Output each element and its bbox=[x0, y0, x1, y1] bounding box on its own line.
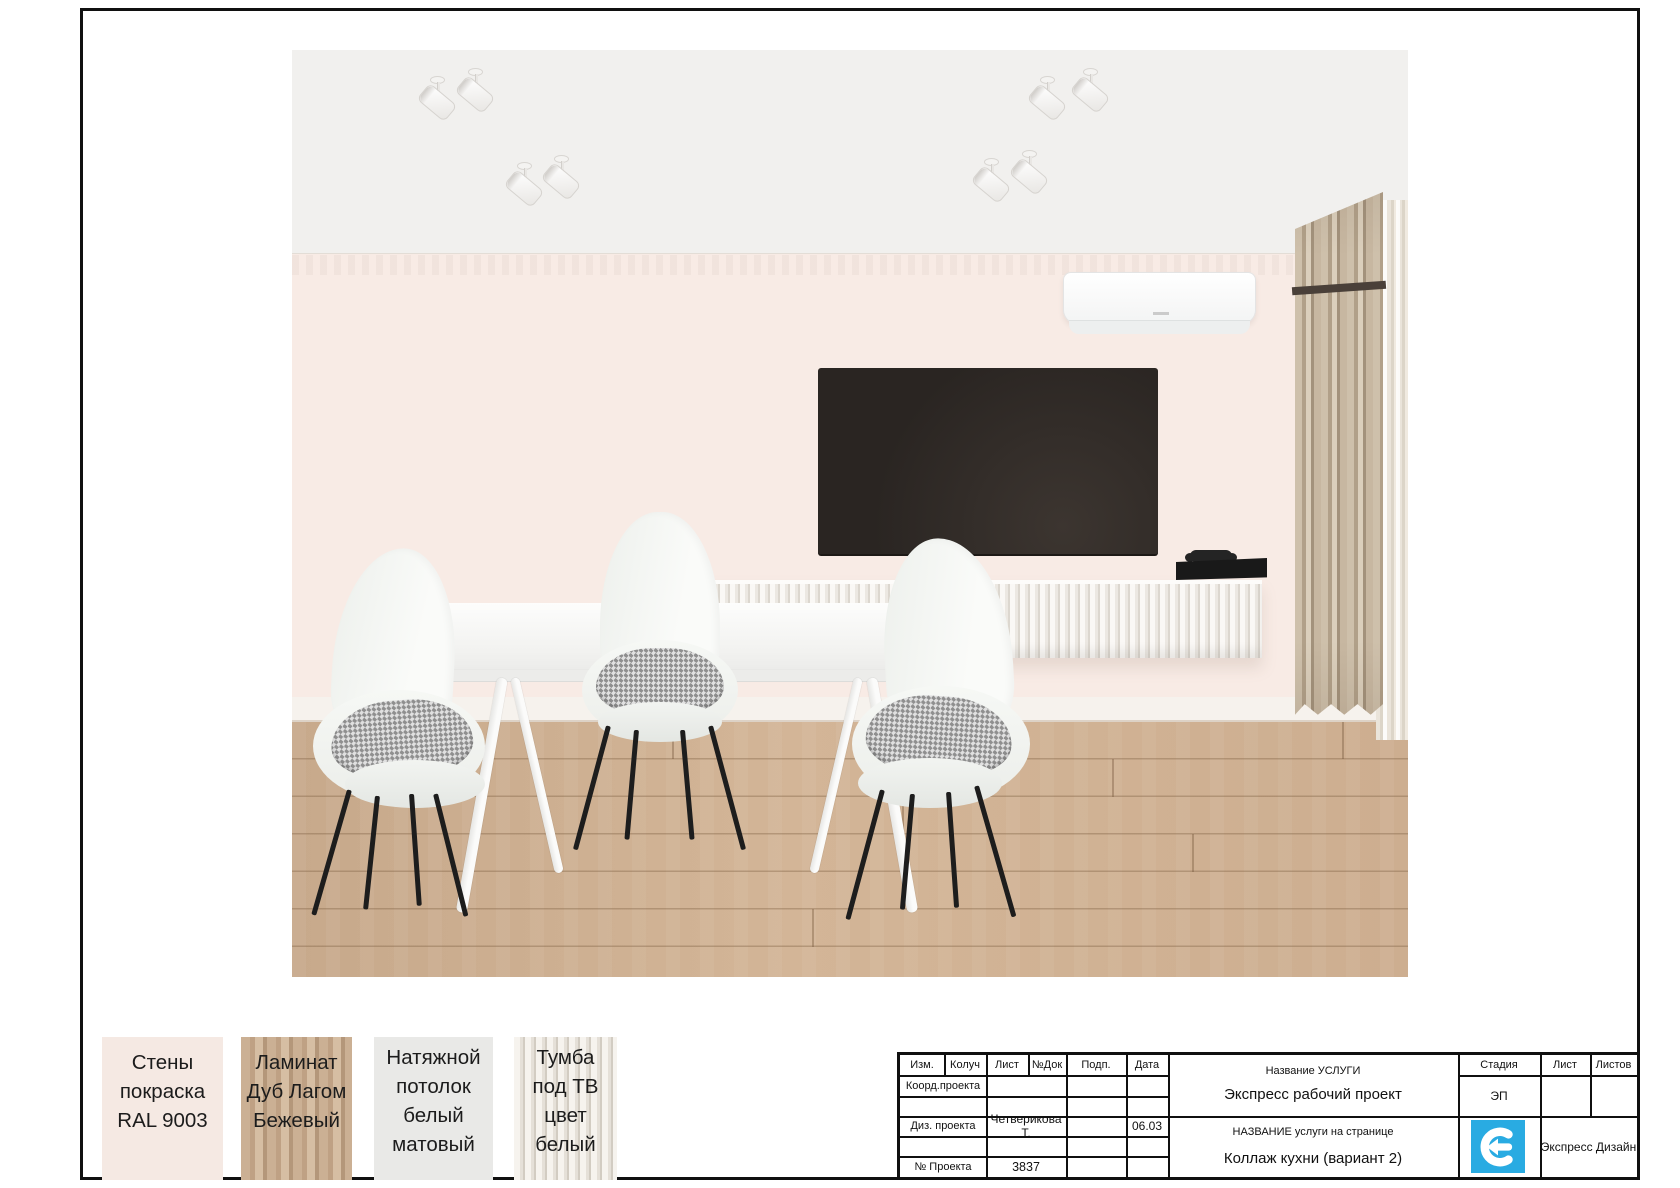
designer-name: Четверикова Т. bbox=[986, 1116, 1066, 1136]
page-service-name: Коллаж кухни (вариант 2) bbox=[1168, 1145, 1458, 1171]
ac-logo bbox=[1153, 312, 1169, 315]
ceiling-spotlight-icon bbox=[1028, 76, 1070, 134]
service-caption: Название УСЛУГИ bbox=[1168, 1063, 1458, 1079]
ceiling-spotlight-icon bbox=[418, 76, 460, 134]
swatch-line: Стены bbox=[132, 1048, 193, 1077]
col-data: Дата bbox=[1126, 1055, 1168, 1075]
swatch-line: под ТВ bbox=[533, 1072, 599, 1101]
swatch-line: потолок bbox=[396, 1072, 471, 1101]
swatch-tv-cabinet: Тумба под ТВ цвет белый bbox=[514, 1037, 617, 1180]
swatch-line: Дуб Лагом bbox=[247, 1077, 347, 1106]
swatch-line: матовый bbox=[392, 1130, 475, 1159]
col-izm: Изм. bbox=[900, 1055, 944, 1075]
page-service-caption: НАЗВАНИЕ услуги на странице bbox=[1168, 1124, 1458, 1140]
swatch-line: Тумба bbox=[537, 1043, 595, 1072]
floor-plank-seam bbox=[1112, 759, 1114, 797]
logo-e-arrow-icon bbox=[1477, 1126, 1519, 1168]
tv-screen bbox=[818, 368, 1158, 556]
swatch-line: цвет bbox=[544, 1101, 587, 1130]
ceiling-spotlight-icon bbox=[456, 68, 498, 126]
swatch-wall-paint: Стены покраска RAL 9003 bbox=[102, 1037, 223, 1180]
stage-value: ЭП bbox=[1458, 1075, 1540, 1116]
title-block: Изм. Колуч Лист №Док Подп. Дата Коорд.пр… bbox=[897, 1052, 1640, 1180]
swatch-line: покраска bbox=[120, 1077, 205, 1106]
swatch-line: Ламинат bbox=[255, 1048, 337, 1077]
chair-seat-front bbox=[345, 760, 485, 808]
ceiling-spotlight-icon bbox=[505, 162, 547, 220]
ac-flap bbox=[1069, 320, 1250, 334]
curtain bbox=[1295, 192, 1408, 742]
ceiling-spotlight-icon bbox=[542, 155, 584, 213]
swatch-line: белый bbox=[535, 1130, 595, 1159]
swatch-line: RAL 9003 bbox=[117, 1106, 207, 1135]
chair-center bbox=[578, 512, 742, 810]
sheet-label: Лист bbox=[1540, 1055, 1590, 1075]
ceiling-spotlight-icon bbox=[1071, 68, 1113, 126]
project-number-label: № Проекта bbox=[900, 1156, 986, 1177]
sheets-label: Листов bbox=[1590, 1055, 1637, 1075]
floor-plank-seam bbox=[812, 909, 814, 947]
chair-left bbox=[305, 548, 495, 865]
window-frame-bar bbox=[1396, 200, 1400, 740]
kitchen-collage-render bbox=[292, 50, 1408, 977]
project-number: 3837 bbox=[986, 1156, 1066, 1177]
ceiling-spotlight-icon bbox=[972, 158, 1014, 216]
air-conditioner bbox=[1063, 272, 1256, 338]
swatch-ceiling: Натяжной потолок белый матовый bbox=[374, 1037, 493, 1180]
brand-name: Экспресс Дизайн bbox=[1540, 1116, 1637, 1177]
design-project-label: Диз. проекта bbox=[900, 1116, 986, 1136]
swatch-line: белый bbox=[403, 1101, 463, 1130]
drawing-sheet: Стены покраска RAL 9003 Ламинат Дуб Лаго… bbox=[0, 0, 1680, 1188]
col-koluch: Колуч bbox=[944, 1055, 986, 1075]
floor-plank-seam bbox=[1192, 834, 1194, 872]
col-podp: Подп. bbox=[1066, 1055, 1126, 1075]
swatch-line: Натяжной bbox=[386, 1043, 480, 1072]
col-list: Лист bbox=[986, 1055, 1028, 1075]
chair-right bbox=[822, 538, 1048, 872]
express-design-logo bbox=[1471, 1120, 1525, 1173]
stage-label: Стадия bbox=[1458, 1055, 1540, 1075]
ac-body bbox=[1063, 272, 1256, 324]
ceiling-spotlight-icon bbox=[1010, 150, 1052, 208]
swatch-laminate: Ламинат Дуб Лагом Бежевый bbox=[241, 1037, 352, 1180]
chair-seat-front bbox=[598, 702, 722, 742]
curtain-drape bbox=[1295, 192, 1383, 720]
col-ndok: №Док bbox=[1028, 1055, 1066, 1075]
game-console bbox=[1176, 548, 1267, 582]
swatch-line: Бежевый bbox=[253, 1106, 340, 1135]
design-date: 06.03 bbox=[1126, 1116, 1168, 1136]
coord-project-label: Коорд.проекта bbox=[900, 1075, 986, 1096]
service-name: Экспресс рабочий проект bbox=[1168, 1081, 1458, 1107]
